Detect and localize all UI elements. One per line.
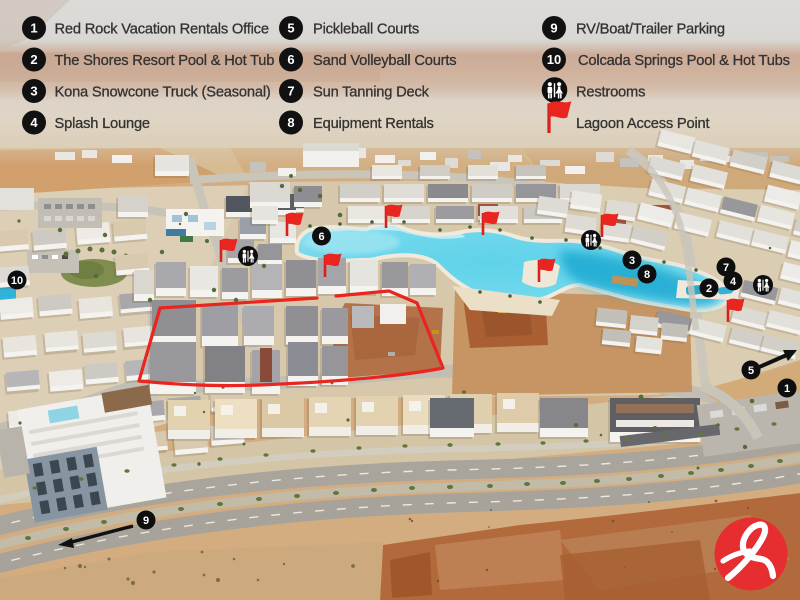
svg-text:The Shores Resort Pool & Hot T: The Shores Resort Pool & Hot Tub — [55, 53, 275, 69]
svg-text:3: 3 — [30, 84, 37, 99]
svg-text:Red Rock Vacation Rentals Offi: Red Rock Vacation Rentals Office — [55, 21, 269, 37]
svg-text:10: 10 — [11, 275, 23, 287]
svg-text:1: 1 — [784, 383, 790, 395]
svg-text:9: 9 — [550, 21, 557, 36]
svg-text:Colcada Springs Pool & Hot Tub: Colcada Springs Pool & Hot Tubs — [578, 53, 790, 69]
svg-text:Restrooms: Restrooms — [576, 84, 645, 100]
svg-text:5: 5 — [748, 365, 754, 377]
svg-text:2: 2 — [30, 52, 37, 67]
svg-text:Sun Tanning Deck: Sun Tanning Deck — [313, 84, 430, 100]
svg-text:7: 7 — [287, 84, 294, 99]
svg-text:6: 6 — [287, 52, 294, 67]
svg-text:Sand Volleyball Courts: Sand Volleyball Courts — [313, 53, 456, 69]
svg-text:8: 8 — [287, 115, 294, 130]
svg-text:3: 3 — [629, 255, 635, 267]
svg-text:5: 5 — [287, 21, 294, 36]
svg-text:4: 4 — [730, 276, 737, 288]
svg-text:Kona Snowcone Truck (Seasonal): Kona Snowcone Truck (Seasonal) — [55, 84, 271, 100]
svg-text:10: 10 — [547, 52, 561, 67]
svg-text:Lagoon Access Point: Lagoon Access Point — [576, 116, 709, 132]
svg-text:Splash Lounge: Splash Lounge — [55, 116, 150, 132]
svg-text:7: 7 — [723, 262, 729, 274]
svg-text:Equipment Rentals: Equipment Rentals — [313, 116, 434, 132]
svg-text:9: 9 — [143, 515, 149, 527]
svg-text:1: 1 — [30, 21, 37, 36]
svg-text:Pickleball Courts: Pickleball Courts — [313, 21, 419, 37]
svg-text:8: 8 — [644, 269, 650, 281]
svg-text:6: 6 — [318, 231, 324, 243]
svg-text:2: 2 — [706, 283, 712, 295]
svg-text:RV/Boat/Trailer Parking: RV/Boat/Trailer Parking — [576, 21, 725, 37]
svg-text:4: 4 — [30, 115, 38, 130]
